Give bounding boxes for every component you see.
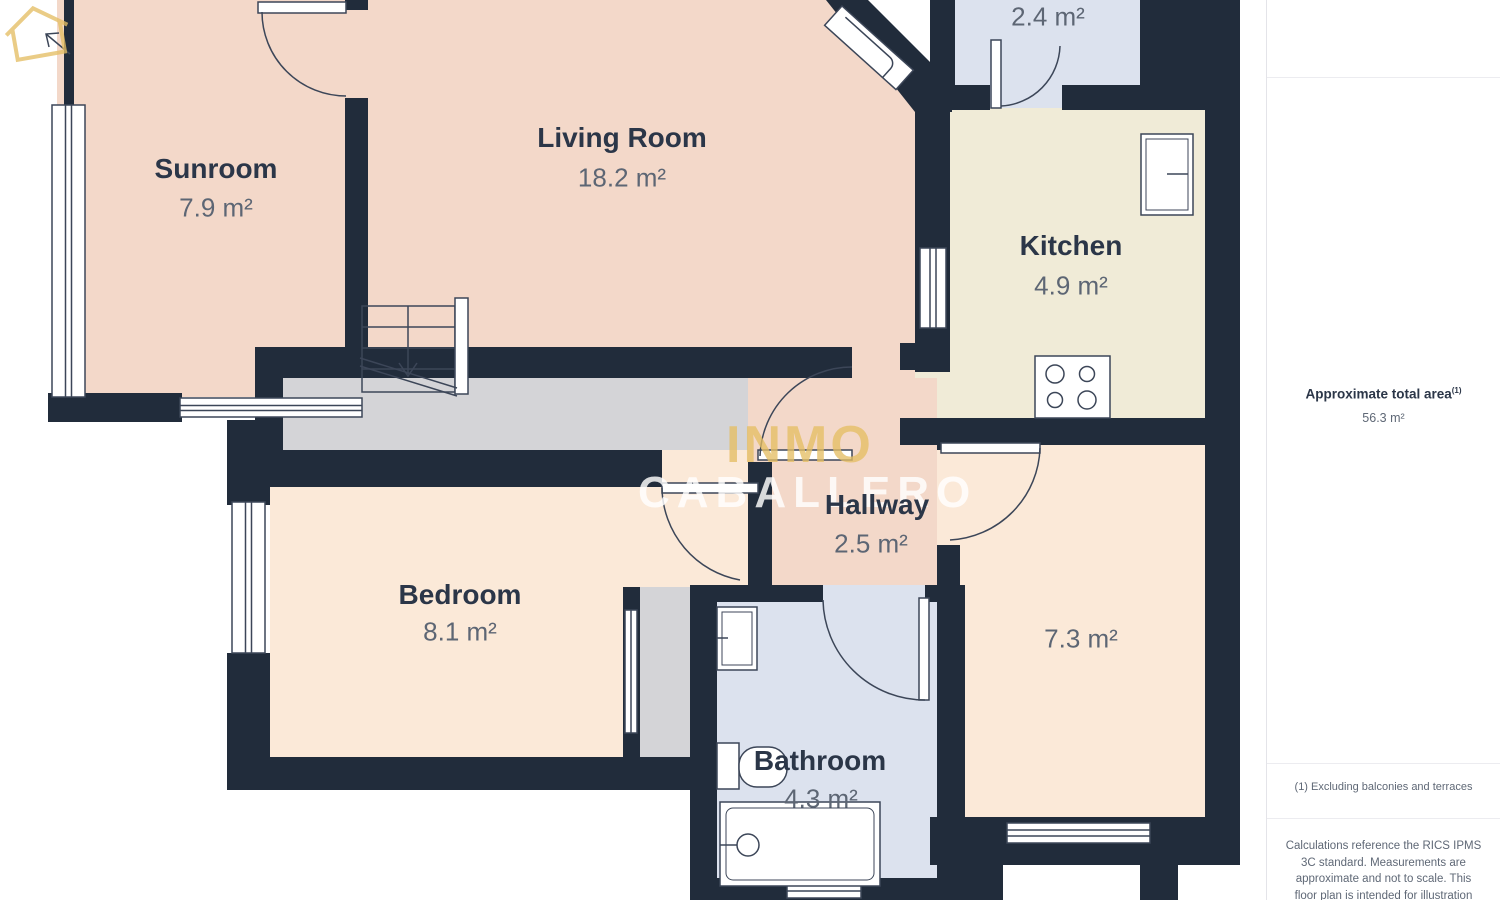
floorplan-canvas: INMO CABALLERO Sunroom 7.9 m² Living Roo…: [0, 0, 1266, 900]
room-area-sunroom: 7.9 m²: [179, 193, 253, 224]
total-area-label: Approximate total area(1): [1267, 386, 1500, 402]
stove-icon: [1035, 356, 1110, 418]
room-label-hallway: Hallway: [825, 489, 929, 521]
room-area-balcony: 2.4 m²: [1011, 2, 1085, 33]
room-label-bedroom: Bedroom: [399, 579, 522, 611]
window-bedroom-shaft: [625, 610, 637, 733]
floor-bedroom-doorway: [662, 450, 748, 487]
sidebar-footnote: (1) Excluding balconies and terraces: [1267, 781, 1500, 793]
room-area-hallway: 2.5 m²: [834, 529, 908, 560]
room-area-living-room: 18.2 m²: [578, 163, 666, 194]
kitchen-counter-icon: [1141, 134, 1193, 215]
window-bedroom-left: [232, 502, 265, 653]
sidebar-disclaimer: Calculations reference the RICS IPMS 3C …: [1283, 838, 1484, 900]
total-area-value: 56.3 m²: [1267, 411, 1500, 425]
room-label-kitchen: Kitchen: [1020, 230, 1123, 262]
room-area-kitchen: 4.9 m²: [1034, 271, 1108, 302]
floor-bathroom-doorway: [823, 585, 925, 602]
floorplan-page: INMO CABALLERO Sunroom 7.9 m² Living Roo…: [0, 0, 1500, 900]
room-area-room-right: 7.3 m²: [1044, 624, 1118, 655]
window-kitchen-internal: [920, 248, 946, 328]
bathtub-icon: [720, 802, 880, 886]
floor-room-right-doorway: [937, 450, 960, 545]
sink-icon: [717, 607, 757, 670]
room-area-bathroom: 4.3 m²: [784, 784, 858, 815]
room-label-living-room: Living Room: [537, 122, 707, 154]
info-sidebar: Approximate total area(1) 56.3 m² (1) Ex…: [1266, 0, 1500, 900]
total-area-footnote-marker: (1): [1452, 386, 1462, 395]
window-room-right-bottom: [1007, 823, 1150, 843]
total-area-block: Approximate total area(1) 56.3 m²: [1267, 386, 1500, 425]
room-label-sunroom: Sunroom: [155, 153, 278, 185]
room-label-bathroom: Bathroom: [754, 745, 886, 777]
sidebar-divider-disclaimer: [1267, 818, 1500, 819]
window-sunroom-bottom: [180, 398, 362, 417]
floor-shaft: [640, 587, 690, 757]
sidebar-divider-footnote: [1267, 763, 1500, 764]
sidebar-divider-top: [1267, 77, 1500, 78]
room-area-bedroom: 8.1 m²: [423, 617, 497, 648]
window-sunroom-left: [52, 105, 85, 397]
